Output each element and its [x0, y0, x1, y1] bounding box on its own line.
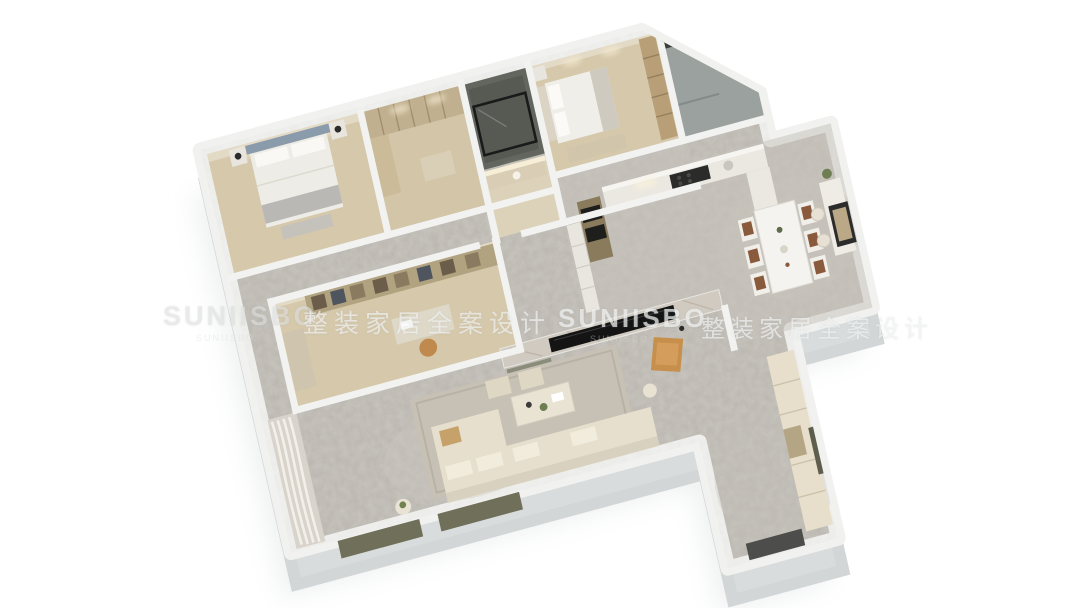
floorplan-render-canvas: SUNIISBO SUNIISBO 整装家居全案设计 SUNIISBO SUNI…: [0, 0, 1080, 608]
armchair: [651, 337, 683, 372]
isometric-floorplan: [0, 0, 1080, 608]
